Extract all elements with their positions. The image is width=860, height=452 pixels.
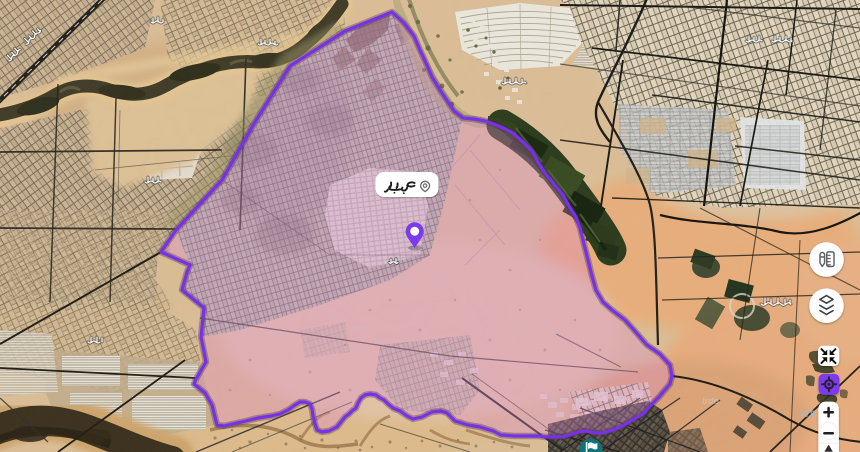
svg-text:irdo: irdo bbox=[702, 396, 720, 406]
svg-text:ws: ws bbox=[800, 406, 816, 420]
